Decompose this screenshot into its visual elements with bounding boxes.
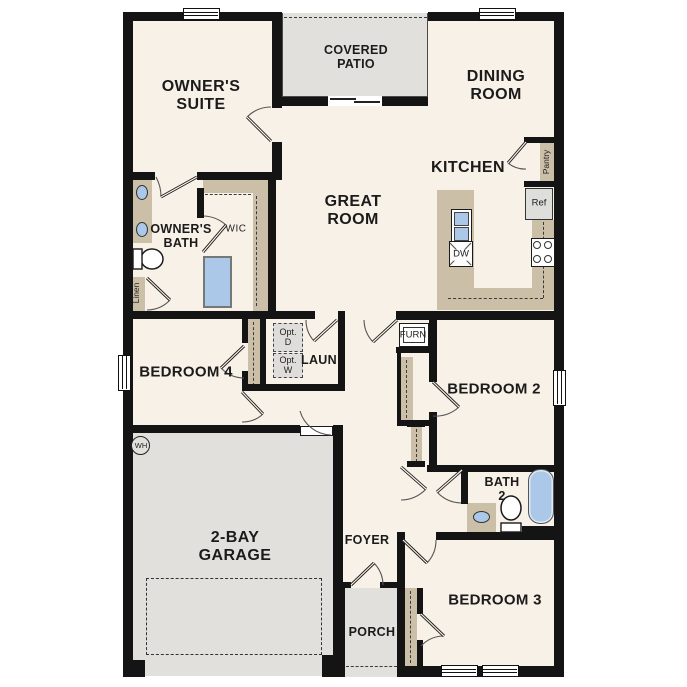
wall (123, 12, 133, 677)
bath2-label: BATH2 (485, 475, 520, 503)
label-line: BEDROOM 4 (139, 365, 233, 382)
window-mullion (483, 672, 517, 673)
label-line: KITCHEN (431, 159, 505, 177)
wall (397, 532, 405, 668)
label-line: Ref (532, 199, 547, 210)
owners-bath-label: OWNER'SBATH (150, 222, 211, 250)
laundry-label: LAUN (301, 353, 337, 367)
wic-label: WIC (226, 223, 247, 234)
wall (272, 97, 328, 106)
label-line: OWNER'S (162, 78, 241, 96)
wall (397, 353, 401, 423)
island-sink-basin (454, 212, 469, 226)
window-mullion (184, 15, 218, 16)
wall (338, 311, 345, 391)
garage-door-leaf (300, 426, 333, 436)
label-line: BEDROOM 2 (447, 382, 541, 399)
wall (417, 588, 423, 614)
wall (382, 97, 428, 106)
window-mullion (483, 669, 517, 670)
kitchen-label: KITCHEN (431, 159, 505, 177)
label-line: DW (453, 250, 469, 261)
label-line: FURN (400, 331, 426, 342)
wall (554, 12, 564, 677)
label-line: Linen (132, 283, 142, 304)
bath-sink (136, 185, 148, 200)
island-sink-basin (454, 227, 469, 241)
dash-line-v (410, 591, 411, 663)
wall (272, 12, 282, 108)
ref-label: Ref (532, 199, 547, 210)
wall (242, 311, 248, 343)
label-line: PORCH (349, 625, 396, 639)
label-line: BATH (485, 475, 520, 489)
window-mullion (561, 371, 562, 404)
label-line: FOYER (345, 533, 390, 547)
bedroom3-label: BEDROOM 3 (448, 593, 542, 610)
window (482, 665, 519, 677)
label-line: GARAGE (199, 547, 272, 565)
wall (333, 425, 343, 676)
floor-plan: OWNER'SSUITECOVEREDPATIODININGROOMGREATR… (0, 0, 687, 687)
window (183, 8, 220, 20)
label-line: LAUN (301, 353, 337, 367)
label-line: D (279, 337, 296, 347)
wall (268, 180, 276, 319)
owners-suite-label: OWNER'SSUITE (162, 78, 241, 114)
wall (524, 181, 555, 187)
opt-w-label: Opt.W (279, 355, 296, 375)
dash-line-h (346, 666, 397, 667)
label-line: WIC (226, 223, 247, 234)
bedroom2-closet-shelf (401, 357, 413, 420)
wall (461, 466, 468, 504)
wall (133, 172, 155, 180)
wall (436, 532, 564, 540)
dw-label: DW (452, 250, 470, 261)
label-line: OWNER'S (150, 222, 211, 236)
bath-sink (136, 222, 148, 237)
stove (531, 238, 555, 267)
label-line: ROOM (467, 86, 525, 104)
wall (197, 172, 282, 180)
label-line: Opt. (279, 355, 296, 365)
label-line: GREAT (325, 193, 382, 211)
sliding-door-panel (330, 98, 356, 100)
label-line: BEDROOM 3 (448, 593, 542, 610)
opt-d-label: Opt.D (279, 327, 296, 347)
wall (242, 384, 345, 391)
wall (260, 311, 266, 391)
label-line: DINING (467, 68, 525, 86)
wall (417, 640, 423, 666)
dash-line-v (253, 322, 254, 386)
window (118, 355, 131, 391)
porch-label: PORCH (349, 625, 396, 639)
dash-line-v (416, 429, 417, 462)
wall (524, 137, 555, 143)
wall (396, 311, 564, 320)
linen-label: Linen (132, 283, 142, 304)
sliding-door-panel (354, 101, 380, 103)
label-line: PATIO (324, 57, 388, 71)
bedroom2-label: BEDROOM 2 (447, 382, 541, 399)
label-line: COVERED (324, 43, 388, 57)
wall (123, 311, 315, 319)
wall (197, 188, 204, 218)
bathtub (528, 469, 554, 524)
label-line: W (279, 365, 296, 375)
window-mullion (122, 356, 123, 389)
pantry-label: Pantry (542, 150, 552, 175)
label-line: BATH (150, 236, 211, 250)
foyer-label: FOYER (345, 533, 390, 547)
wall (407, 461, 425, 467)
wh-label: WH (135, 442, 148, 450)
wall (397, 666, 564, 677)
bath2-sink (473, 511, 490, 523)
wic-shelf-top (203, 180, 268, 193)
wall (407, 421, 425, 427)
label-line: 2 (485, 489, 520, 503)
kitchen-counter-bottom (437, 288, 555, 310)
wall (429, 412, 437, 465)
window-mullion (480, 15, 514, 16)
window (441, 665, 478, 677)
label-line: SUITE (162, 96, 241, 114)
window-mullion (442, 672, 476, 673)
window-mullion (184, 12, 218, 13)
label-line: 2-BAY (199, 529, 272, 547)
window (479, 8, 516, 20)
dash-line-v (406, 360, 407, 418)
shower (203, 256, 232, 308)
covered-patio-label: COVEREDPATIO (324, 43, 388, 71)
dash-line-v (256, 196, 257, 306)
label-line: WH (135, 442, 148, 450)
window-mullion (557, 371, 558, 404)
bedroom4-label: BEDROOM 4 (139, 365, 233, 382)
window-mullion (480, 12, 514, 13)
great-room-label: GREATROOM (325, 193, 382, 229)
label-line: ROOM (325, 211, 382, 229)
dash-line-h (205, 194, 251, 195)
window-mullion (442, 669, 476, 670)
bedroom4-closet-shelf (248, 319, 260, 387)
wall (123, 425, 300, 433)
furn-label: FURN (400, 331, 426, 342)
label-line: Pantry (542, 150, 552, 175)
wall (429, 353, 437, 382)
garage-label: 2-BAYGARAGE (199, 529, 272, 565)
wall (123, 660, 145, 677)
dash-line-h (284, 17, 427, 18)
dash-line-h (448, 298, 543, 299)
bedroom3-closet-shelf (405, 588, 417, 666)
window (553, 370, 566, 406)
garage-door-outline (146, 578, 322, 655)
window-mullion (126, 356, 127, 389)
dining-room-label: DININGROOM (467, 68, 525, 104)
label-line: Opt. (279, 327, 296, 337)
